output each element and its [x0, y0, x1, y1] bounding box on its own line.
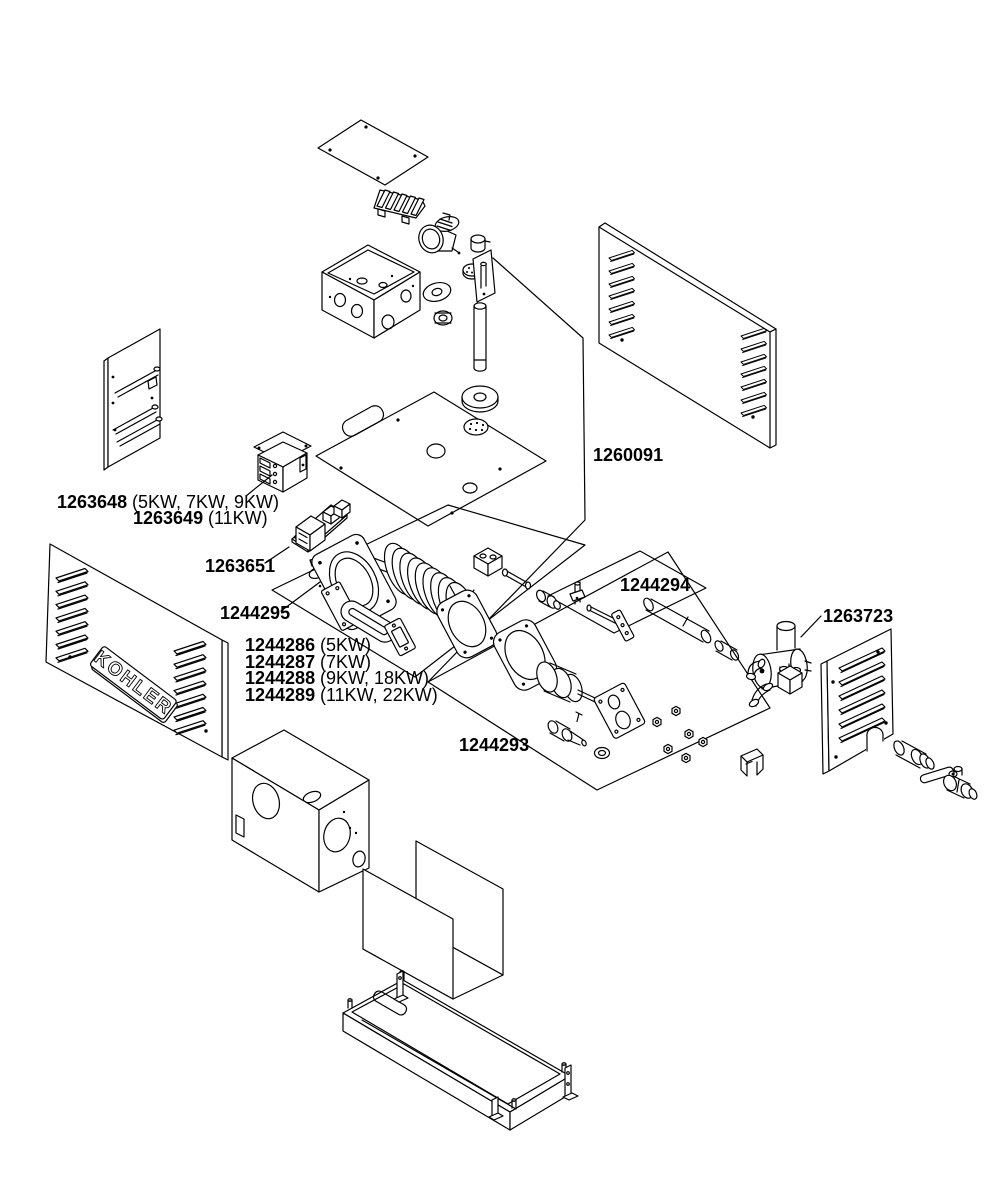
part-label-1263649-variants: (11KW)	[208, 508, 268, 528]
tray-bracket-right	[563, 1065, 578, 1100]
part-label-1244295: 1244295	[220, 603, 290, 623]
vent-disc-lower	[464, 419, 488, 435]
electrical-box	[322, 245, 420, 338]
right-side-panel	[821, 629, 893, 774]
mounting-panel	[104, 329, 162, 470]
block-fitting-top	[474, 548, 502, 576]
part-label-1263649: 1263649	[133, 508, 203, 528]
nipple-tube	[503, 569, 531, 589]
diagram-canvas: KOHLER	[0, 0, 998, 1200]
top-cover-plate	[318, 120, 428, 185]
pipe-fitting-right	[892, 739, 936, 770]
part-label-1260091: 1260091	[593, 445, 663, 465]
ball-valve	[919, 766, 978, 800]
part-label-1263648: 1263648	[57, 492, 127, 512]
part-label-1244289-variants: (11KW, 22KW)	[320, 685, 438, 705]
barrel-fitting	[535, 589, 562, 610]
part-label-1263651: 1263651	[205, 556, 275, 576]
washer-small	[421, 280, 453, 305]
part-label-1244294: 1244294	[620, 575, 690, 595]
steam-pipe	[642, 597, 740, 662]
washer-large	[462, 386, 498, 412]
pin-bracket-plate	[473, 250, 495, 302]
rod-bracket	[587, 605, 634, 642]
cap-fitting	[471, 235, 490, 252]
exploded-parts-diagram: KOHLER	[0, 0, 998, 1200]
block-fitting-right	[778, 664, 802, 694]
tank-wrap	[363, 841, 503, 999]
heat-sink	[374, 190, 425, 224]
rear-panel	[599, 223, 776, 448]
probe	[546, 712, 587, 747]
part-label-1263723: 1263723	[823, 606, 893, 626]
part-label-1244293: 1244293	[459, 735, 529, 755]
clamp	[741, 749, 763, 776]
hex-fitting	[434, 311, 452, 325]
front-panel: KOHLER	[46, 544, 228, 760]
pressure-relief-valve	[415, 213, 460, 256]
tank-cover	[232, 730, 369, 892]
part-label-1244289: 1244289	[245, 685, 315, 705]
leader-1263723	[801, 616, 821, 637]
probe-washer	[595, 748, 610, 759]
